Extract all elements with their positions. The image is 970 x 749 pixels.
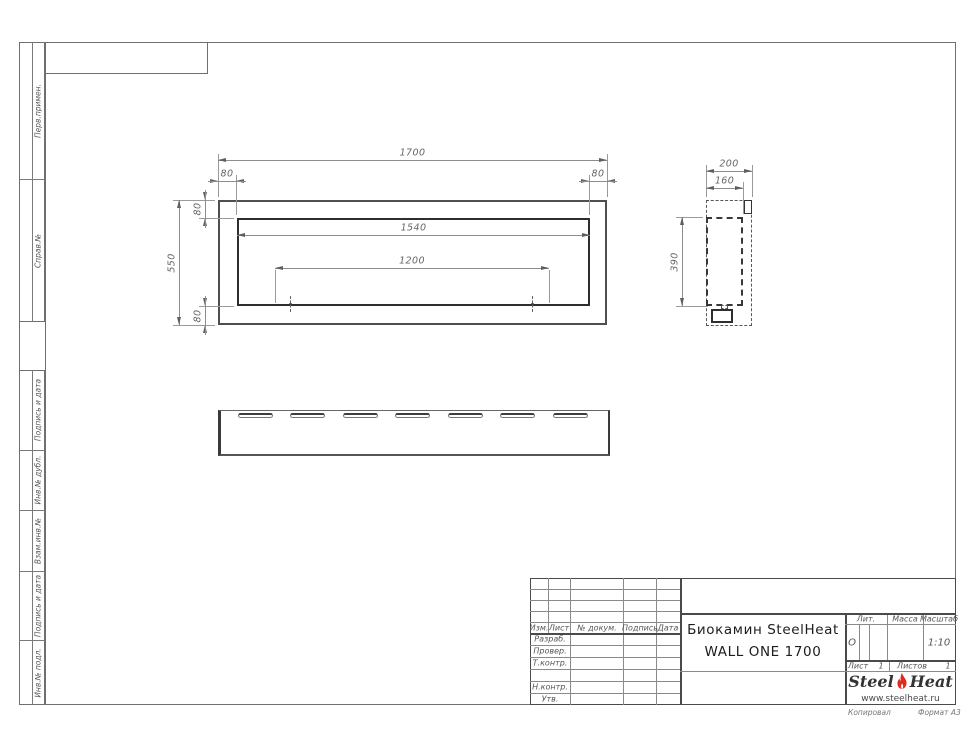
tb-massa-label: Масса — [892, 615, 918, 624]
side-view-top-bracket — [744, 200, 752, 214]
dimension-arrow — [706, 169, 714, 173]
document-title-line1: Биокамин SteelHeat — [687, 622, 839, 638]
extension-line — [549, 270, 550, 303]
dimension-arrow — [735, 186, 743, 190]
tb-row-utv: Утв. — [542, 695, 559, 704]
tb-line — [530, 669, 680, 670]
dim-200-label: 200 — [719, 159, 738, 170]
tb-sheets-label: Листов — [897, 662, 927, 671]
tb-row-prover: Провер. — [533, 647, 566, 656]
dimension-arrow — [680, 217, 684, 225]
tb-sheet-value: 1 — [878, 662, 883, 671]
mount-centerline — [532, 296, 533, 312]
dimension-arrow — [541, 266, 549, 270]
tb-lit-value: О — [848, 638, 856, 649]
tb-line — [656, 578, 657, 705]
tb-header-list: Лист — [549, 624, 569, 633]
dim-1700-line — [218, 160, 607, 161]
extension-line — [676, 306, 708, 307]
tb-lit-label: Лит. — [857, 615, 875, 624]
tb-scale-value: 1:10 — [928, 638, 950, 649]
dim-390-line — [682, 217, 683, 306]
vent-slot — [238, 413, 273, 418]
dim-80-top-left-label: 80 — [221, 169, 234, 180]
tb-header-date: Дата — [658, 624, 679, 633]
margin-section-line — [19, 510, 45, 511]
steelheat-logo: SteelHeat www.steelheat.ru — [845, 671, 956, 705]
dim-80-top-left-line — [218, 181, 236, 182]
dim-tail — [607, 181, 617, 182]
dimension-arrow — [177, 200, 181, 208]
dim-390-label: 390 — [670, 252, 681, 271]
tb-row-tkontr: Т.контр. — [533, 659, 568, 668]
top-left-reference-box — [45, 42, 208, 74]
dim-80-left-top-label: 80 — [193, 203, 204, 216]
tb-line — [530, 589, 680, 590]
dimension-arrow — [706, 186, 714, 190]
dim-80-left-bottom-line — [205, 306, 206, 325]
tb-scale-label: Масштаб — [920, 615, 958, 624]
side-view-burner-box — [711, 309, 733, 323]
footer-format-label: Формат А3 — [918, 708, 961, 717]
dimension-arrow — [275, 266, 283, 270]
tb-header-sign: Подпись — [622, 624, 658, 633]
dim-tail — [205, 325, 206, 335]
dim-1700-label: 1700 — [400, 148, 426, 159]
logo-steel-text: Steel — [848, 672, 893, 691]
tb-line — [570, 578, 571, 705]
dim-tail — [236, 181, 246, 182]
dim-80-left-bottom-label: 80 — [193, 309, 204, 322]
logo-site-url: www.steelheat.ru — [845, 694, 956, 704]
dimension-arrow — [218, 158, 226, 162]
side-view-inner-dashed — [706, 217, 743, 306]
dim-550-label: 550 — [167, 253, 178, 272]
margin-section-line — [19, 450, 45, 451]
tb-row-nkontr: Н.контр. — [532, 683, 568, 692]
dimension-arrow — [177, 317, 181, 325]
dim-tail — [208, 181, 218, 182]
dimension-arrow — [237, 233, 245, 237]
margin-section-label: Взам.инв.№ — [34, 517, 43, 563]
margin-section-label: Перв.примен. — [34, 84, 43, 138]
footer-copied-label: Копировал — [848, 708, 891, 717]
dim-tail — [205, 218, 206, 228]
margin-section-label: Инв.№ дубл. — [34, 456, 43, 505]
tb-line — [869, 624, 870, 660]
dim-1200-line — [275, 268, 549, 269]
dimension-arrow — [582, 233, 590, 237]
dim-80-top-right-line — [589, 181, 607, 182]
dim-tail — [205, 190, 206, 200]
vent-slot — [500, 413, 535, 418]
extension-line — [173, 325, 215, 326]
extension-line — [752, 165, 753, 197]
margin-section-label: Справ.№ — [34, 233, 43, 267]
dimension-arrow — [744, 169, 752, 173]
dimension-arrow — [680, 298, 684, 306]
margin-section-label: Подпись и дата — [34, 574, 43, 636]
margin-section-label: Подпись и дата — [34, 379, 43, 441]
vent-slot — [395, 413, 430, 418]
tb-line — [859, 624, 860, 660]
dimension-arrow — [599, 158, 607, 162]
dim-1540-line — [237, 235, 590, 236]
document-title-line2: WALL ONE 1700 — [705, 644, 822, 660]
tb-header-doc: № докум. — [577, 624, 616, 633]
logo-heat-text: Heat — [910, 672, 953, 691]
side-view-burner-notch — [721, 305, 728, 309]
vent-slot — [343, 413, 378, 418]
mount-centerline — [290, 296, 291, 312]
extension-line — [743, 182, 744, 214]
frame-left-inner-line — [45, 42, 46, 705]
tb-line — [887, 613, 888, 660]
margin-section-line — [19, 640, 45, 641]
dim-550-line — [179, 200, 180, 325]
vent-slot — [448, 413, 483, 418]
extension-line — [275, 270, 276, 303]
tb-sheet-label: Лист — [848, 662, 868, 671]
extension-line — [607, 154, 608, 197]
vent-slot — [553, 413, 588, 418]
tb-line — [889, 660, 890, 671]
dim-1200-label: 1200 — [399, 256, 425, 267]
tb-sheets-value: 1 — [945, 662, 950, 671]
drawing-sheet: Изм. Лист № докум. Подпись Дата Разраб. … — [0, 0, 970, 749]
vent-slot — [290, 413, 325, 418]
dim-80-top-right-label: 80 — [592, 169, 605, 180]
margin-section-line — [19, 179, 45, 180]
dim-1540-label: 1540 — [401, 223, 427, 234]
tb-line — [623, 578, 624, 705]
tb-row-razrab: Разраб. — [534, 635, 565, 644]
margin-section-line — [19, 571, 45, 572]
tb-line — [530, 600, 680, 601]
dim-tail — [579, 181, 589, 182]
dim-tail — [205, 296, 206, 306]
tb-line — [680, 578, 682, 705]
tb-line — [530, 611, 680, 612]
margin-section-label: Инв.№ подл. — [34, 648, 43, 697]
tb-header-izm: Изм. — [530, 624, 549, 633]
dim-160-label: 160 — [715, 176, 734, 187]
flame-icon — [895, 672, 909, 695]
dim-80-left-top-line — [205, 200, 206, 218]
tb-line — [845, 624, 956, 625]
